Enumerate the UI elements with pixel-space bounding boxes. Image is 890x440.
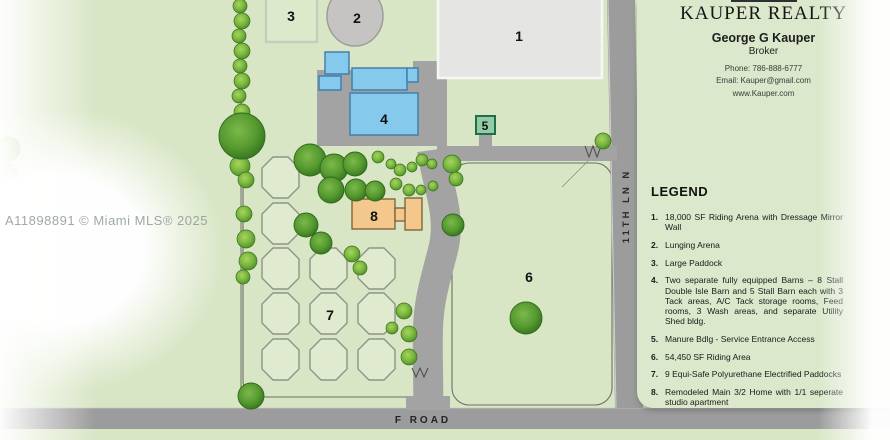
11th-ln-label: 11TH LN N [621,169,632,244]
south-parcel-strip [0,429,890,440]
area-label-7: 7 [326,307,334,323]
mls-siteplan-image: 1 2 3 4 5 6 7 8 F ROAD 11TH LN N KAUPER … [0,0,890,440]
legend-item-6: 6. 54,450 SF Riding Area [651,352,851,362]
legend-item-5: 5. Manure Bdlg - Service Entrance Access [651,334,851,344]
legend-heading: LEGEND [651,184,851,199]
agent-website: www.Kauper.com [637,88,890,100]
south-drive-apron [406,396,450,410]
agent-phone: Phone: 786-888-6777 [637,63,890,75]
agent-email: Email: Kauper@gmail.com [637,75,890,87]
area-label-6: 6 [525,269,533,285]
contact-block: Phone: 786-888-6777 Email: Kauper@gmail.… [637,63,890,100]
area-label-8: 8 [370,208,378,224]
legend-item-1: 1. 18,000 SF Riding Arena with Dressage … [651,212,851,232]
logo-rule [731,0,797,2]
legend-item-4: 4. Two separate fully equipped Barns – 8… [651,275,851,326]
f-road-label: F ROAD [395,415,451,426]
agent-name: George G Kauper [637,31,890,45]
legend-item-2: 2. Lunging Arena [651,240,851,250]
area-label-4: 4 [380,111,388,127]
area-label-5: 5 [482,119,489,133]
legend-item-7: 7. 9 Equi-Safe Polyurethane Electrified … [651,369,851,379]
area-label-1: 1 [515,28,523,44]
legend-item-8: 8. Remodeled Main 3/2 Home with 1/1 sepe… [651,387,851,407]
legend-item-3: 3. Large Paddock [651,258,851,268]
mls-watermark: A11898891 © Miami MLS® 2025 [5,213,208,228]
brokerage-title: KAUPER REALTY [637,3,890,25]
agent-role: Broker [637,46,890,57]
main-home-8 [352,198,422,230]
area-label-2: 2 [353,10,361,26]
legend: LEGEND 1. 18,000 SF Riding Arena with Dr… [651,184,851,407]
area-label-3: 3 [287,8,295,24]
broker-info-panel: KAUPER REALTY George G Kauper Broker Pho… [637,0,890,408]
